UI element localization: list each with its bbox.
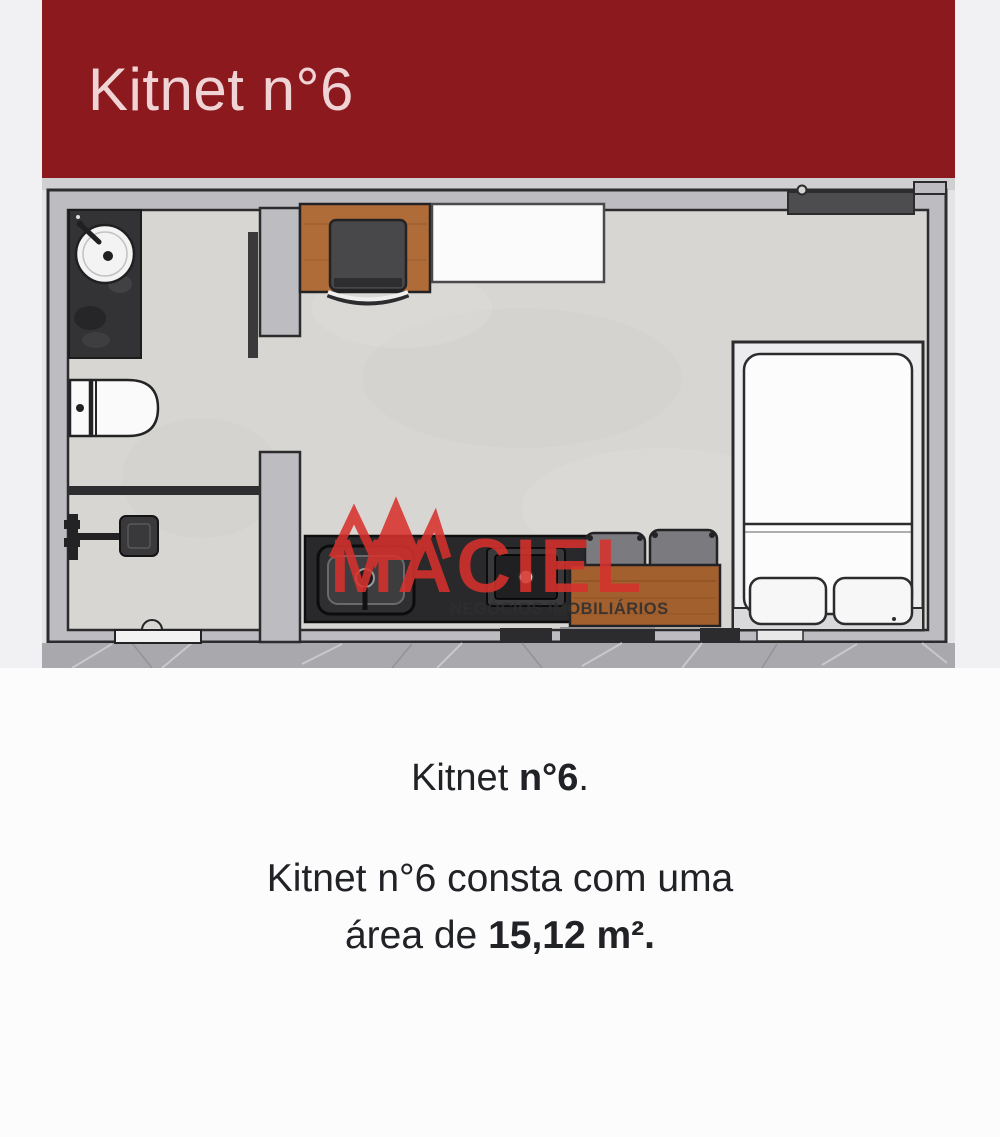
caption-body-line1: Kitnet n°6 consta com uma	[0, 850, 1000, 907]
wall-counter	[432, 204, 604, 282]
photo-header: Kitnet n°6	[42, 0, 955, 178]
caption-title-prefix: Kitnet	[411, 757, 519, 799]
caption-area-prefix: área de	[345, 914, 488, 957]
caption-title-period: .	[578, 757, 589, 799]
unit-title: Kitnet n°6	[42, 55, 354, 124]
listing-photo-section: Kitnet n°6	[0, 0, 1000, 668]
toilet	[70, 380, 158, 436]
watermark: MACIEL NEGÓCIOS IMOBILIÁRIOS	[330, 508, 669, 618]
pillow-right	[834, 578, 912, 624]
desk-chair	[328, 220, 408, 302]
caption-area-value: 15,12 m².	[488, 914, 655, 957]
caption-title: Kitnet n°6.	[0, 668, 1000, 801]
bathroom-sink	[69, 210, 141, 358]
bathroom-door-leaf	[248, 232, 258, 358]
pillow-left	[750, 578, 826, 624]
watermark-tagline: NEGÓCIOS IMOBILIÁRIOS	[450, 599, 669, 618]
caption-body-line2: área de 15,12 m².	[0, 907, 1000, 964]
caption-section: Kitnet n°6. Kitnet n°6 consta com uma ár…	[0, 668, 1000, 1137]
watermark-brand: MACIEL	[330, 524, 645, 609]
floorplan-photo: Kitnet n°6	[42, 0, 955, 668]
sliding-door	[500, 627, 803, 642]
double-bed	[733, 342, 923, 630]
mattress	[744, 354, 912, 614]
caption-title-number: n°6	[519, 757, 579, 799]
top-strip	[42, 178, 955, 190]
shower-partition-wall	[68, 486, 260, 495]
floorplan-drawing: MACIEL NEGÓCIOS IMOBILIÁRIOS	[42, 178, 955, 668]
stone-floor	[42, 643, 955, 668]
window-handle	[798, 186, 807, 195]
caption-body: Kitnet n°6 consta com uma área de 15,12 …	[0, 850, 1000, 964]
